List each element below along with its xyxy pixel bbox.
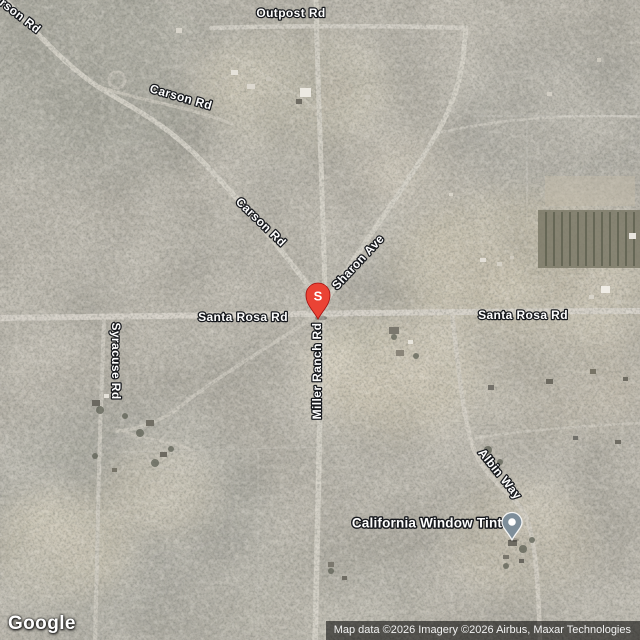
search-marker-letter: S [314, 289, 323, 304]
road-label-santa-rosa-east: Santa Rosa Rd [478, 308, 568, 322]
road-label-outpost-rd: Outpost Rd [256, 6, 325, 20]
road-label-miller-ranch-rd: Miller Ranch Rd [310, 323, 324, 420]
road-label-syracuse-rd: Syracuse Rd [109, 322, 123, 399]
orchard-field [538, 176, 640, 268]
attribution-bar: Map data ©2026 Imagery ©2026 Airbus, Max… [326, 621, 640, 640]
satellite-map[interactable]: Carson Rd Outpost Rd Carson Rd Carson Rd… [0, 0, 640, 640]
map-canvas[interactable]: Carson Rd Outpost Rd Carson Rd Carson Rd… [0, 0, 640, 640]
google-logo[interactable]: Google [8, 613, 76, 635]
poi-pin-dot [508, 518, 516, 526]
road-label-santa-rosa-west: Santa Rosa Rd [198, 310, 288, 324]
poi-label[interactable]: California Window Tint [352, 516, 503, 531]
